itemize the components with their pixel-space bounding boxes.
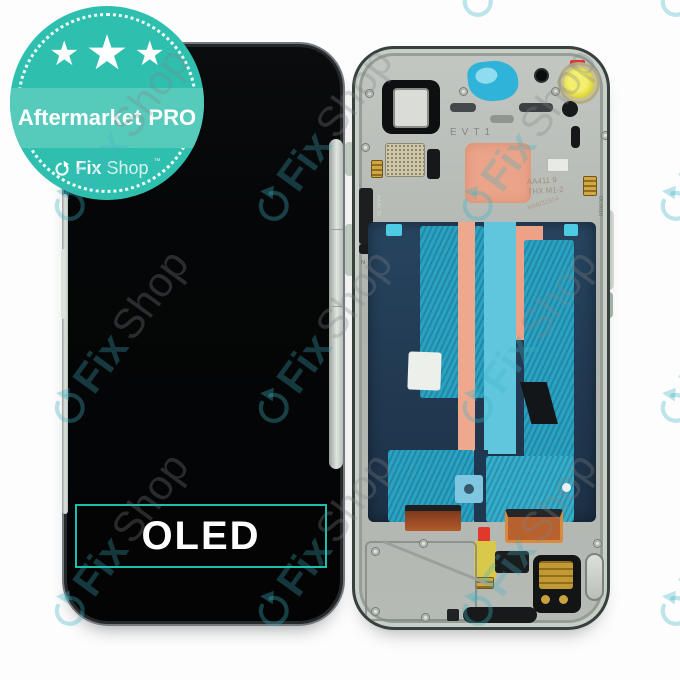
rail-seam [329, 229, 343, 230]
star-icon: ★ [135, 37, 165, 71]
lens-hole [534, 68, 549, 83]
display-connector-right [505, 509, 563, 543]
logo-shop: Shop [106, 158, 148, 179]
cyan-tab [564, 224, 578, 236]
badge-title: Aftermarket [18, 105, 142, 131]
speaker-pin [541, 595, 550, 604]
screw [551, 87, 560, 96]
speaker-pin [559, 595, 568, 604]
volume-button [61, 249, 66, 319]
product-photo: OLED EVT1 AA411 9 THX M1-2 MM031914 [0, 0, 680, 680]
right-code: DC0016 [597, 196, 603, 216]
star-icon: ★ [85, 30, 128, 78]
aftermarket-pro-badge: ★ ★ ★ Aftermarket PRO Fix Shop ™ [10, 6, 204, 200]
speaker-mesh [385, 143, 425, 177]
screw [459, 87, 468, 96]
bottom-black-strip [463, 607, 537, 623]
yellow-flex [474, 541, 496, 579]
screw [361, 143, 370, 152]
blue-chip [455, 475, 483, 503]
mesh-side-bar [427, 149, 440, 179]
badge-title-band: Aftermarket PRO [10, 88, 204, 148]
white-chip [547, 158, 569, 172]
camera-housing [382, 80, 440, 134]
badge-title-bold: PRO [148, 105, 196, 131]
frame-rail-right [329, 139, 343, 469]
plate-frame-line [365, 541, 477, 621]
side-code: AA41 39 [375, 195, 381, 216]
evt-marking: EVT1 [450, 127, 495, 138]
oval-component [585, 553, 604, 601]
speaker-module [533, 555, 581, 613]
watermark-tile: FixShop [644, 445, 680, 640]
refresh-icon [646, 380, 680, 436]
coil-sticker [561, 65, 597, 101]
screw [365, 89, 374, 98]
bottom-port-slot [517, 627, 531, 630]
star-icon: ★ [49, 37, 79, 71]
cyan-tab [386, 224, 402, 236]
refresh-icon [646, 583, 680, 639]
frame-rail-left [62, 194, 68, 514]
fixshop-logo: Fix Shop ™ [10, 158, 204, 179]
bottom-port-slot [439, 627, 457, 630]
contact-pad [583, 176, 597, 196]
bottom-port-slot [479, 627, 505, 630]
white-patch [407, 351, 441, 390]
bottom-foot [447, 609, 459, 621]
date-stamp: MM031914 [527, 195, 560, 212]
adhesive-patch [466, 58, 520, 103]
slot-bar [450, 103, 476, 112]
battery-cavity [368, 222, 596, 522]
screw [371, 607, 380, 616]
white-dot [562, 483, 571, 492]
screw [421, 613, 430, 622]
screw [593, 539, 602, 548]
phone-back-frame: EVT1 AA411 9 THX M1-2 MM031914 DC0016 AA… [352, 46, 610, 630]
watermark-tile: FixShop [644, 242, 680, 437]
camera-bracket [393, 88, 429, 128]
oled-label-box: OLED [75, 504, 327, 568]
refresh-icon [448, 0, 504, 30]
black-module [495, 551, 529, 573]
watermark-tile: FixShop [644, 0, 680, 31]
slot-bar [519, 103, 553, 112]
screw [601, 131, 610, 140]
adhesive-highlight [475, 67, 499, 85]
rail-seam [329, 306, 343, 307]
refresh-icon [646, 178, 680, 234]
display-connector-left [405, 505, 461, 531]
speaker-contact-grid [539, 561, 573, 589]
slot-bar-gray [490, 115, 514, 123]
logo-trademark: ™ [154, 158, 161, 165]
screw [371, 547, 380, 556]
graphite-column-mid [484, 222, 516, 454]
vertical-slot [571, 126, 580, 148]
chip-dot [464, 484, 474, 494]
sensor-dot [562, 101, 578, 117]
thermal-pad [465, 143, 531, 203]
refresh-icon [646, 0, 680, 30]
screw [419, 539, 428, 548]
star-row: ★ ★ ★ [10, 30, 204, 78]
watermark-tile: FixShop [446, 0, 604, 31]
watermark-tile: FixShop [644, 40, 680, 235]
logo-fix: Fix [75, 158, 101, 179]
oled-label: OLED [141, 514, 260, 559]
contact-pad [371, 160, 383, 178]
refresh-icon [53, 160, 70, 177]
